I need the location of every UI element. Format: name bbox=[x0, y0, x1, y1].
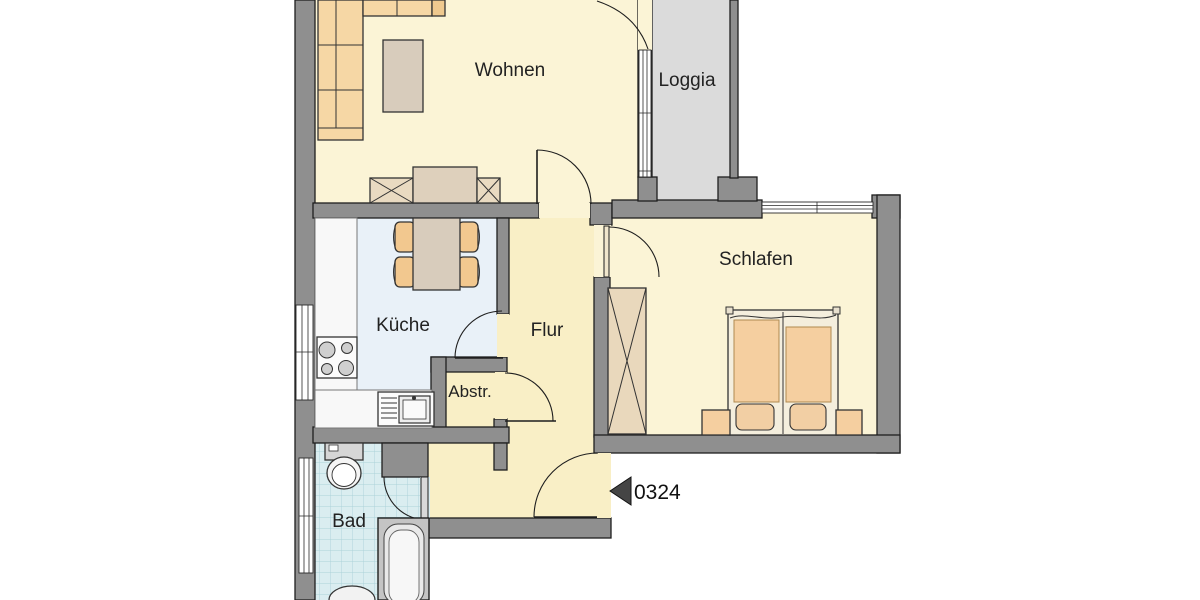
wardrobe bbox=[608, 288, 646, 434]
opening-flur-kueche bbox=[497, 314, 509, 357]
wall-kueche-flur bbox=[497, 218, 509, 314]
entrance-unit-number: 0324 bbox=[634, 481, 681, 504]
dining-table bbox=[413, 218, 460, 290]
room-label-flur: Flur bbox=[531, 320, 564, 341]
window-kueche bbox=[296, 305, 313, 400]
wall-kueche-bad bbox=[313, 427, 509, 443]
opening-entrance bbox=[597, 453, 611, 518]
wall-wohnen-kueche bbox=[313, 203, 539, 218]
stove bbox=[317, 337, 357, 378]
wall-stub-flur-top bbox=[590, 203, 612, 225]
opening-wohnen-flur bbox=[539, 203, 590, 218]
chair bbox=[458, 222, 478, 252]
chair bbox=[395, 222, 415, 252]
chair bbox=[395, 257, 415, 287]
coffee-table bbox=[383, 40, 423, 112]
room-label-kueche: Küche bbox=[376, 315, 430, 336]
nightstand-right bbox=[836, 410, 862, 435]
window-schlafen bbox=[762, 202, 873, 213]
wall-outer-right bbox=[877, 195, 900, 453]
room-label-bad: Bad bbox=[332, 511, 366, 532]
double-bed bbox=[726, 307, 840, 435]
floor-plan-canvas: Wohnen Loggia Küche Flur Abstr. Schlafen… bbox=[0, 0, 1200, 600]
toilet bbox=[325, 443, 363, 489]
wall-flur-bottom bbox=[428, 518, 611, 538]
room-label-loggia: Loggia bbox=[658, 70, 715, 91]
entrance-arrow-icon bbox=[610, 477, 631, 505]
floor-plan-drawing: Wohnen Loggia Küche Flur Abstr. Schlafen… bbox=[0, 0, 1200, 600]
room-label-abstellraum: Abstr. bbox=[448, 382, 491, 401]
nightstand-left bbox=[702, 410, 730, 435]
wall-bad-shaft-block bbox=[382, 443, 428, 477]
kitchen-sink bbox=[378, 392, 434, 426]
entrance-marker: 0324 bbox=[610, 477, 681, 505]
window-wohnen-loggia bbox=[639, 50, 651, 177]
wall-loggia-corner bbox=[718, 177, 757, 201]
room-label-wohnen: Wohnen bbox=[475, 60, 545, 81]
opening-flur-abstellraum bbox=[495, 372, 507, 419]
room-label-schlafen: Schlafen bbox=[719, 249, 793, 270]
wall-schlafen-bottom bbox=[594, 435, 900, 453]
wall-loggia-right bbox=[730, 0, 738, 178]
chair bbox=[458, 257, 478, 287]
pillow bbox=[790, 404, 826, 430]
room-loggia-floor bbox=[652, 0, 732, 200]
window-bad bbox=[299, 458, 313, 573]
wall-stub-entrance bbox=[494, 443, 507, 470]
pillow bbox=[736, 404, 774, 430]
bathtub bbox=[378, 518, 429, 600]
wall-window-base-block bbox=[638, 177, 657, 201]
wall-loggia-schlafen bbox=[612, 200, 762, 218]
